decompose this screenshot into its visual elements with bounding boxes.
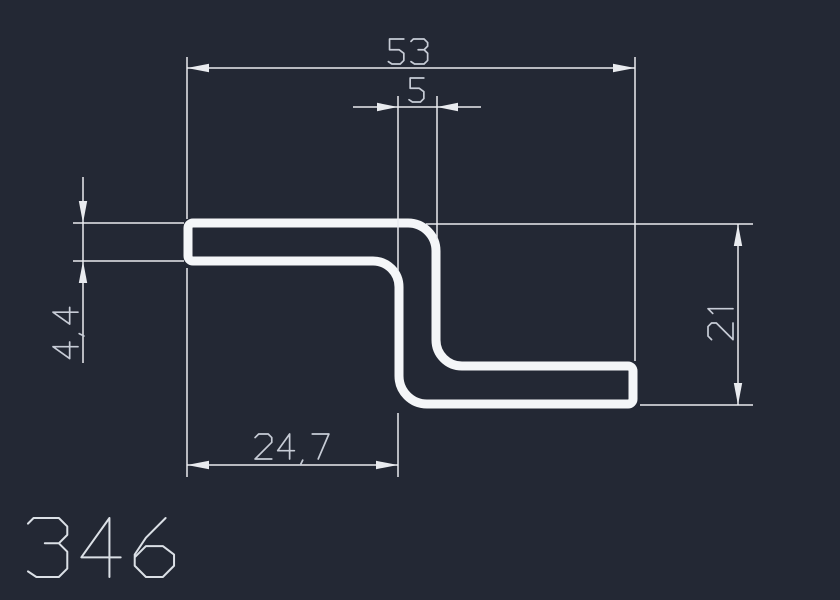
dimension-text-bottom-width [255, 434, 329, 465]
arrowhead-bottom-icon [79, 261, 87, 283]
cad-drawing-canvas [0, 0, 840, 600]
arrowhead-left-icon [377, 103, 398, 111]
arrowhead-right-icon [376, 461, 398, 469]
arrowhead-top-icon [79, 201, 87, 223]
dimension-overall-width [187, 39, 635, 361]
dimension-web-width [353, 78, 481, 271]
dimension-height-right [426, 224, 753, 405]
arrowhead-right-icon [437, 103, 458, 111]
dimension-material-thickness [53, 177, 184, 363]
arrowhead-right-icon [613, 64, 635, 72]
arrowhead-left-icon [187, 64, 209, 72]
arrowhead-left-icon [187, 461, 209, 469]
dimension-text-material-thickness [53, 307, 84, 358]
dimension-text-overall-width [388, 39, 427, 64]
profile-cross-section [188, 223, 633, 404]
dimension-text-web-width [409, 78, 424, 102]
drawing-number-label [28, 518, 174, 577]
dimension-bottom-width [187, 268, 398, 477]
arrowhead-top-icon [734, 224, 742, 246]
dimension-text-height-right [708, 309, 733, 340]
arrowhead-bottom-icon [734, 383, 742, 405]
